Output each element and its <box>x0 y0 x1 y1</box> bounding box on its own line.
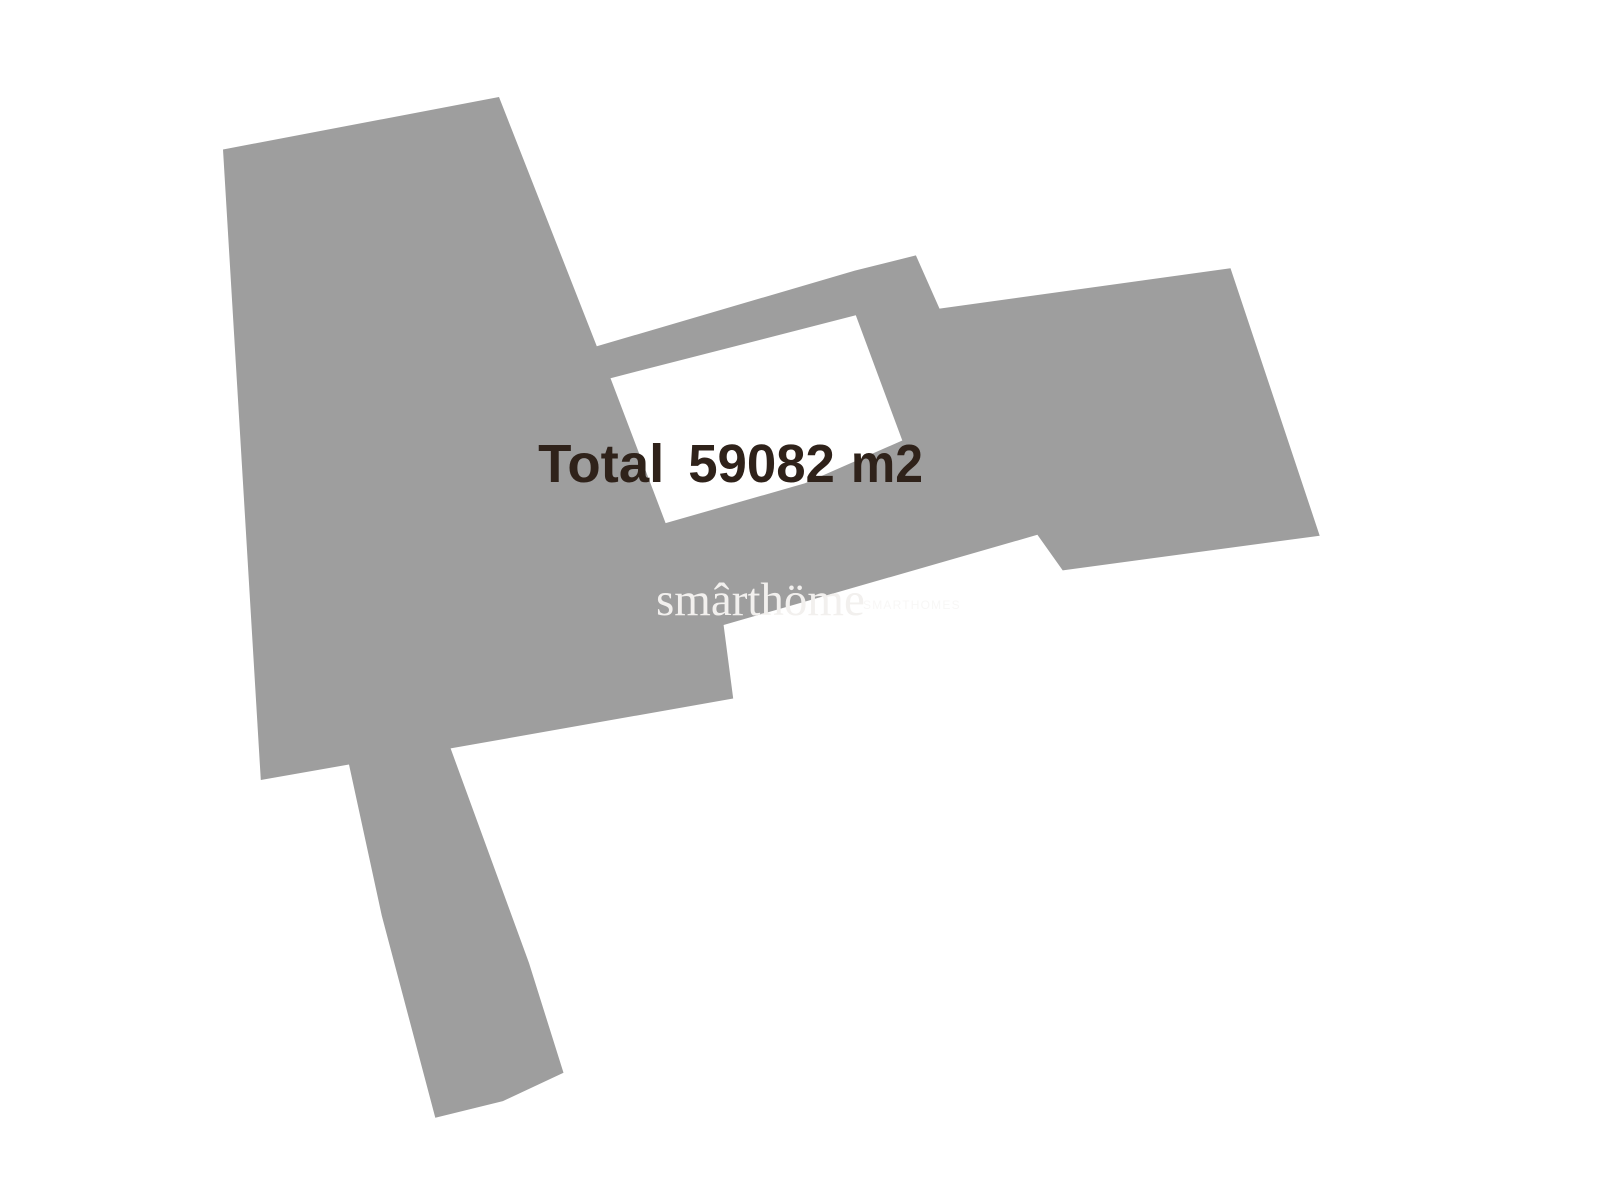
svg-text:Total: Total <box>538 434 664 494</box>
svg-text:59082: 59082 <box>688 434 835 494</box>
svg-text:smârthöme: smârthöme <box>656 574 865 626</box>
svg-text:SMARTHOMES: SMARTHOMES <box>863 598 961 612</box>
svg-text:m2: m2 <box>851 434 923 494</box>
